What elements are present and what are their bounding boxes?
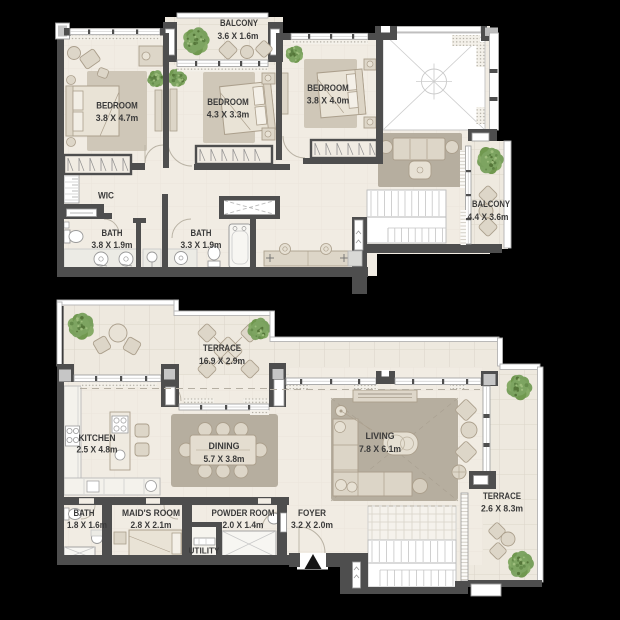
svg-text:BEDROOM: BEDROOM xyxy=(96,101,138,112)
svg-text:BALCONY: BALCONY xyxy=(472,199,511,210)
svg-text:2.6 X 8.3m: 2.6 X 8.3m xyxy=(481,504,523,515)
svg-text:3.8 X 1.9m: 3.8 X 1.9m xyxy=(92,240,133,251)
svg-text:2.5 X 4.8m: 2.5 X 4.8m xyxy=(77,445,118,456)
svg-text:TERRACE: TERRACE xyxy=(203,343,241,354)
svg-text:3.8 X 4.0m: 3.8 X 4.0m xyxy=(307,96,350,107)
svg-text:5.7 X 3.8m: 5.7 X 3.8m xyxy=(204,454,245,465)
svg-text:BEDROOM: BEDROOM xyxy=(307,83,349,94)
svg-text:16.9 X 2.9m: 16.9 X 2.9m xyxy=(199,356,245,367)
svg-text:POWDER ROOM: POWDER ROOM xyxy=(212,508,275,519)
svg-text:TERRACE: TERRACE xyxy=(483,491,521,502)
svg-text:2.8 X 2.1m: 2.8 X 2.1m xyxy=(131,520,172,531)
svg-text:7.8 X 6.1m: 7.8 X 6.1m xyxy=(359,444,401,455)
svg-text:3.6 X 1.6m: 3.6 X 1.6m xyxy=(218,31,259,42)
svg-text:2.0 X 1.4m: 2.0 X 1.4m xyxy=(223,520,264,531)
svg-text:FOYER: FOYER xyxy=(298,508,326,519)
svg-text:BATH: BATH xyxy=(191,228,212,239)
svg-text:LIVING: LIVING xyxy=(366,431,395,442)
svg-text:DINING: DINING xyxy=(209,441,240,452)
svg-text:BATH: BATH xyxy=(102,228,123,239)
svg-text:4.3 X 3.3m: 4.3 X 3.3m xyxy=(207,110,250,121)
svg-text:BEDROOM: BEDROOM xyxy=(207,97,249,108)
svg-text:KITCHEN: KITCHEN xyxy=(79,433,116,444)
svg-text:WIC: WIC xyxy=(98,191,114,202)
svg-text:3.2 X 2.0m: 3.2 X 2.0m xyxy=(291,520,333,531)
svg-text:MAID'S ROOM: MAID'S ROOM xyxy=(122,508,180,519)
svg-text:UTILITY: UTILITY xyxy=(189,547,221,556)
svg-text:BATH: BATH xyxy=(74,508,95,519)
svg-text:4.4 X 3.6m: 4.4 X 3.6m xyxy=(468,212,509,223)
svg-text:BALCONY: BALCONY xyxy=(220,18,259,29)
svg-text:1.8 X 1.6m: 1.8 X 1.6m xyxy=(67,520,107,531)
svg-text:3.8 X 4.7m: 3.8 X 4.7m xyxy=(96,113,139,124)
svg-text:3.3 X 1.9m: 3.3 X 1.9m xyxy=(181,240,222,251)
